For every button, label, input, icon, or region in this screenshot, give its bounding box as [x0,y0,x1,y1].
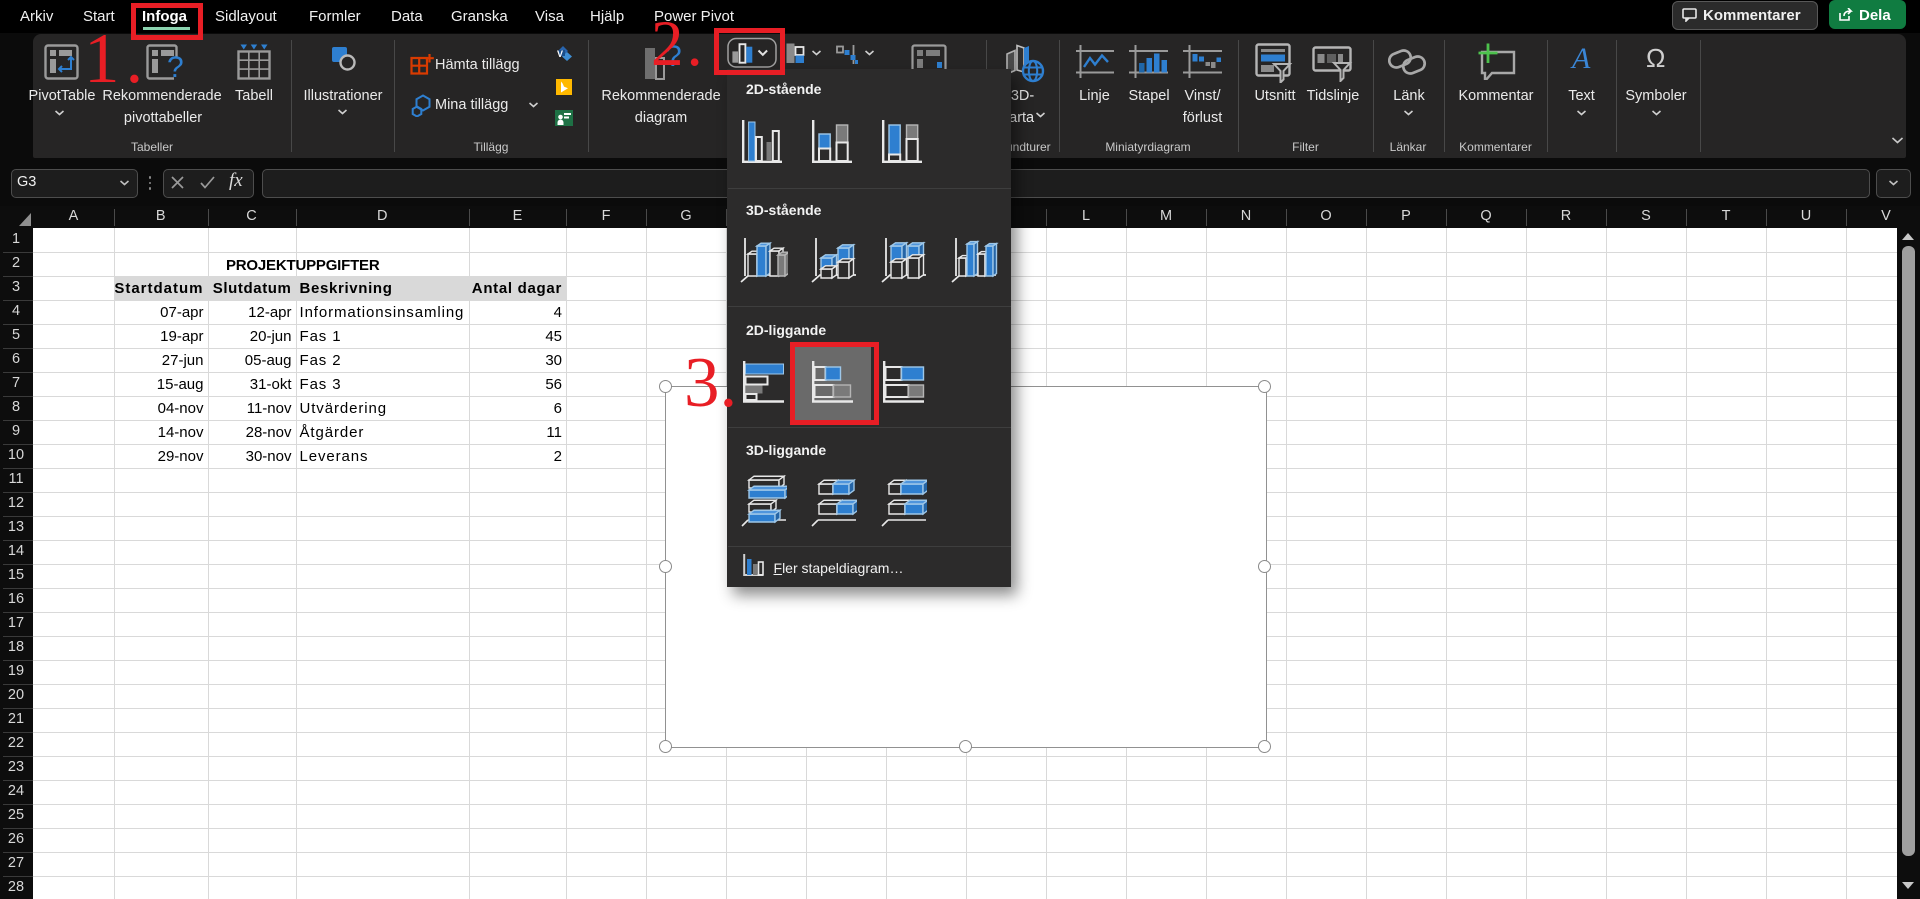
svg-text:Ω: Ω [1646,44,1665,72]
svg-text:V: V [557,49,563,59]
svg-text:A: A [1570,44,1591,72]
svg-text:?: ? [167,51,184,80]
